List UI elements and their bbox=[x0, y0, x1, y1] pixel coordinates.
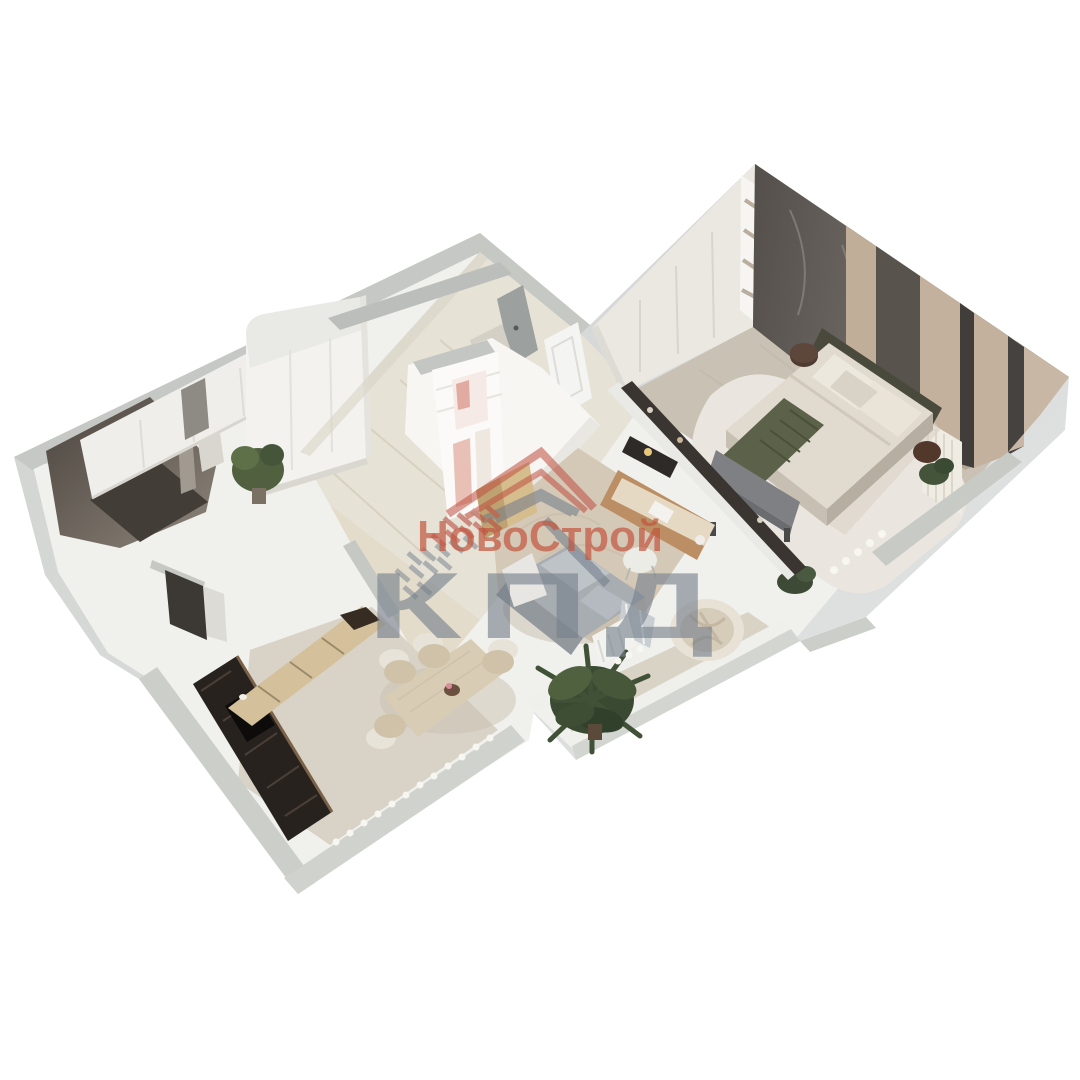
svg-text:КПД: КПД bbox=[367, 553, 731, 658]
